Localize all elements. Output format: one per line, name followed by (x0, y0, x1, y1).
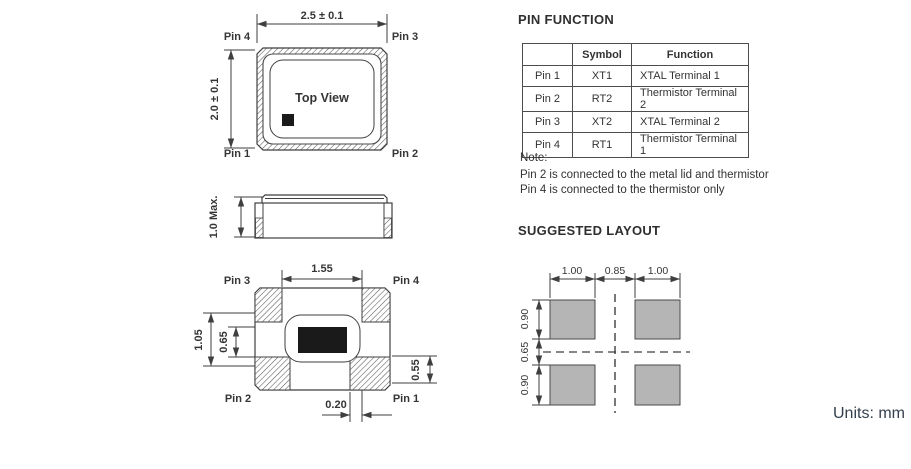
side-view-drawing: 1.0 Max. (205, 183, 405, 245)
suggested-layout-drawing: 1.00 0.85 1.00 0.90 0.65 0.90 (498, 252, 738, 430)
note-line-1: Pin 2 is connected to the metal lid and … (520, 168, 769, 183)
note-block: Note: Pin 2 is connected to the metal li… (520, 151, 769, 198)
bottom-view-pad-pin1 (350, 357, 390, 390)
bottom-view-right-dim: 0.55 (410, 359, 422, 380)
bottom-view-pin3-label: Pin 3 (224, 275, 250, 287)
cell-function: Thermistor Terminal 2 (632, 87, 749, 112)
bottom-view-pin4-label: Pin 4 (393, 275, 420, 287)
header-cell-blank (523, 44, 573, 66)
note-label: Note: (520, 151, 769, 166)
bottom-view-drawing: 1.55 1.05 0.65 0.55 0.20 Pin 3 Pin 4 Pin… (190, 258, 442, 465)
bottom-view-left-outer-dim: 1.05 (193, 329, 205, 350)
top-view-pin4-label: Pin 4 (224, 31, 251, 43)
layout-gap-width-dim: 0.85 (605, 265, 626, 277)
layout-pad-bottom-right (635, 365, 680, 405)
layout-pad-bottom-left (550, 365, 595, 405)
top-view-pin3-label: Pin 3 (392, 31, 418, 43)
top-view-pin2-label: Pin 2 (392, 148, 418, 160)
top-view-height-dim: 2.0 ± 0.1 (209, 78, 221, 121)
cell-symbol: XT2 (573, 112, 632, 133)
cell-pin: Pin 2 (523, 87, 573, 112)
units-label: Units: mm (833, 405, 905, 423)
suggested-layout-heading: SUGGESTED LAYOUT (518, 223, 660, 238)
bottom-view-pad-pin4 (362, 288, 390, 322)
bottom-view-crystal-blank (298, 327, 347, 353)
pin1-marker-square (282, 114, 294, 126)
note-line-2: Pin 4 is connected to the thermistor onl… (520, 183, 769, 198)
header-cell-symbol: Symbol (573, 44, 632, 66)
datasheet-drawing: 2.5 ± 0.1 2.0 ± 0.1 Top View Pin 4 Pin 3… (0, 0, 911, 469)
side-view-body (255, 203, 392, 238)
bottom-view-pin2-label: Pin 2 (225, 393, 251, 405)
header-cell-function: Function (632, 44, 749, 66)
layout-left-pad-width-dim: 1.00 (562, 265, 583, 277)
layout-top-pad-height-dim: 0.90 (519, 309, 531, 330)
layout-bottom-pad-height-dim: 0.90 (519, 375, 531, 396)
bottom-view-pin1-label: Pin 1 (393, 393, 419, 405)
top-view-title: Top View (295, 91, 349, 105)
layout-right-pad-width-dim: 1.00 (648, 265, 669, 277)
layout-vertical-gap-dim: 0.65 (519, 342, 531, 363)
bottom-view-pad-pin3 (255, 288, 282, 322)
table-row: Pin 3 XT2 XTAL Terminal 2 (523, 112, 749, 133)
cell-symbol: XT1 (573, 66, 632, 87)
top-view-width-dim: 2.5 ± 0.1 (301, 10, 344, 22)
bottom-view-bottom-dim: 0.20 (325, 399, 346, 411)
table-row: Pin 1 XT1 XTAL Terminal 1 (523, 66, 749, 87)
pin-function-heading: PIN FUNCTION (518, 12, 614, 27)
cell-function: XTAL Terminal 2 (632, 112, 749, 133)
side-view-height-dim: 1.0 Max. (208, 196, 220, 239)
top-view-drawing: 2.5 ± 0.1 2.0 ± 0.1 Top View Pin 4 Pin 3… (185, 5, 430, 165)
cell-function: XTAL Terminal 1 (632, 66, 749, 87)
cell-pin: Pin 3 (523, 112, 573, 133)
side-view-left-pad (256, 218, 264, 238)
layout-pad-top-right (635, 300, 680, 339)
side-view-right-pad (384, 218, 392, 238)
bottom-view-left-inner-dim: 0.65 (218, 331, 230, 352)
bottom-view-pad-pin2 (255, 357, 290, 390)
layout-pad-top-left (550, 300, 595, 339)
cell-pin: Pin 1 (523, 66, 573, 87)
bottom-view-top-dim: 1.55 (311, 263, 332, 275)
cell-symbol: RT2 (573, 87, 632, 112)
table-row: Pin 2 RT2 Thermistor Terminal 2 (523, 87, 749, 112)
pin-function-table: Symbol Function Pin 1 XT1 XTAL Terminal … (522, 43, 749, 158)
top-view-pin1-label: Pin 1 (224, 148, 250, 160)
table-header-row: Symbol Function (523, 44, 749, 66)
